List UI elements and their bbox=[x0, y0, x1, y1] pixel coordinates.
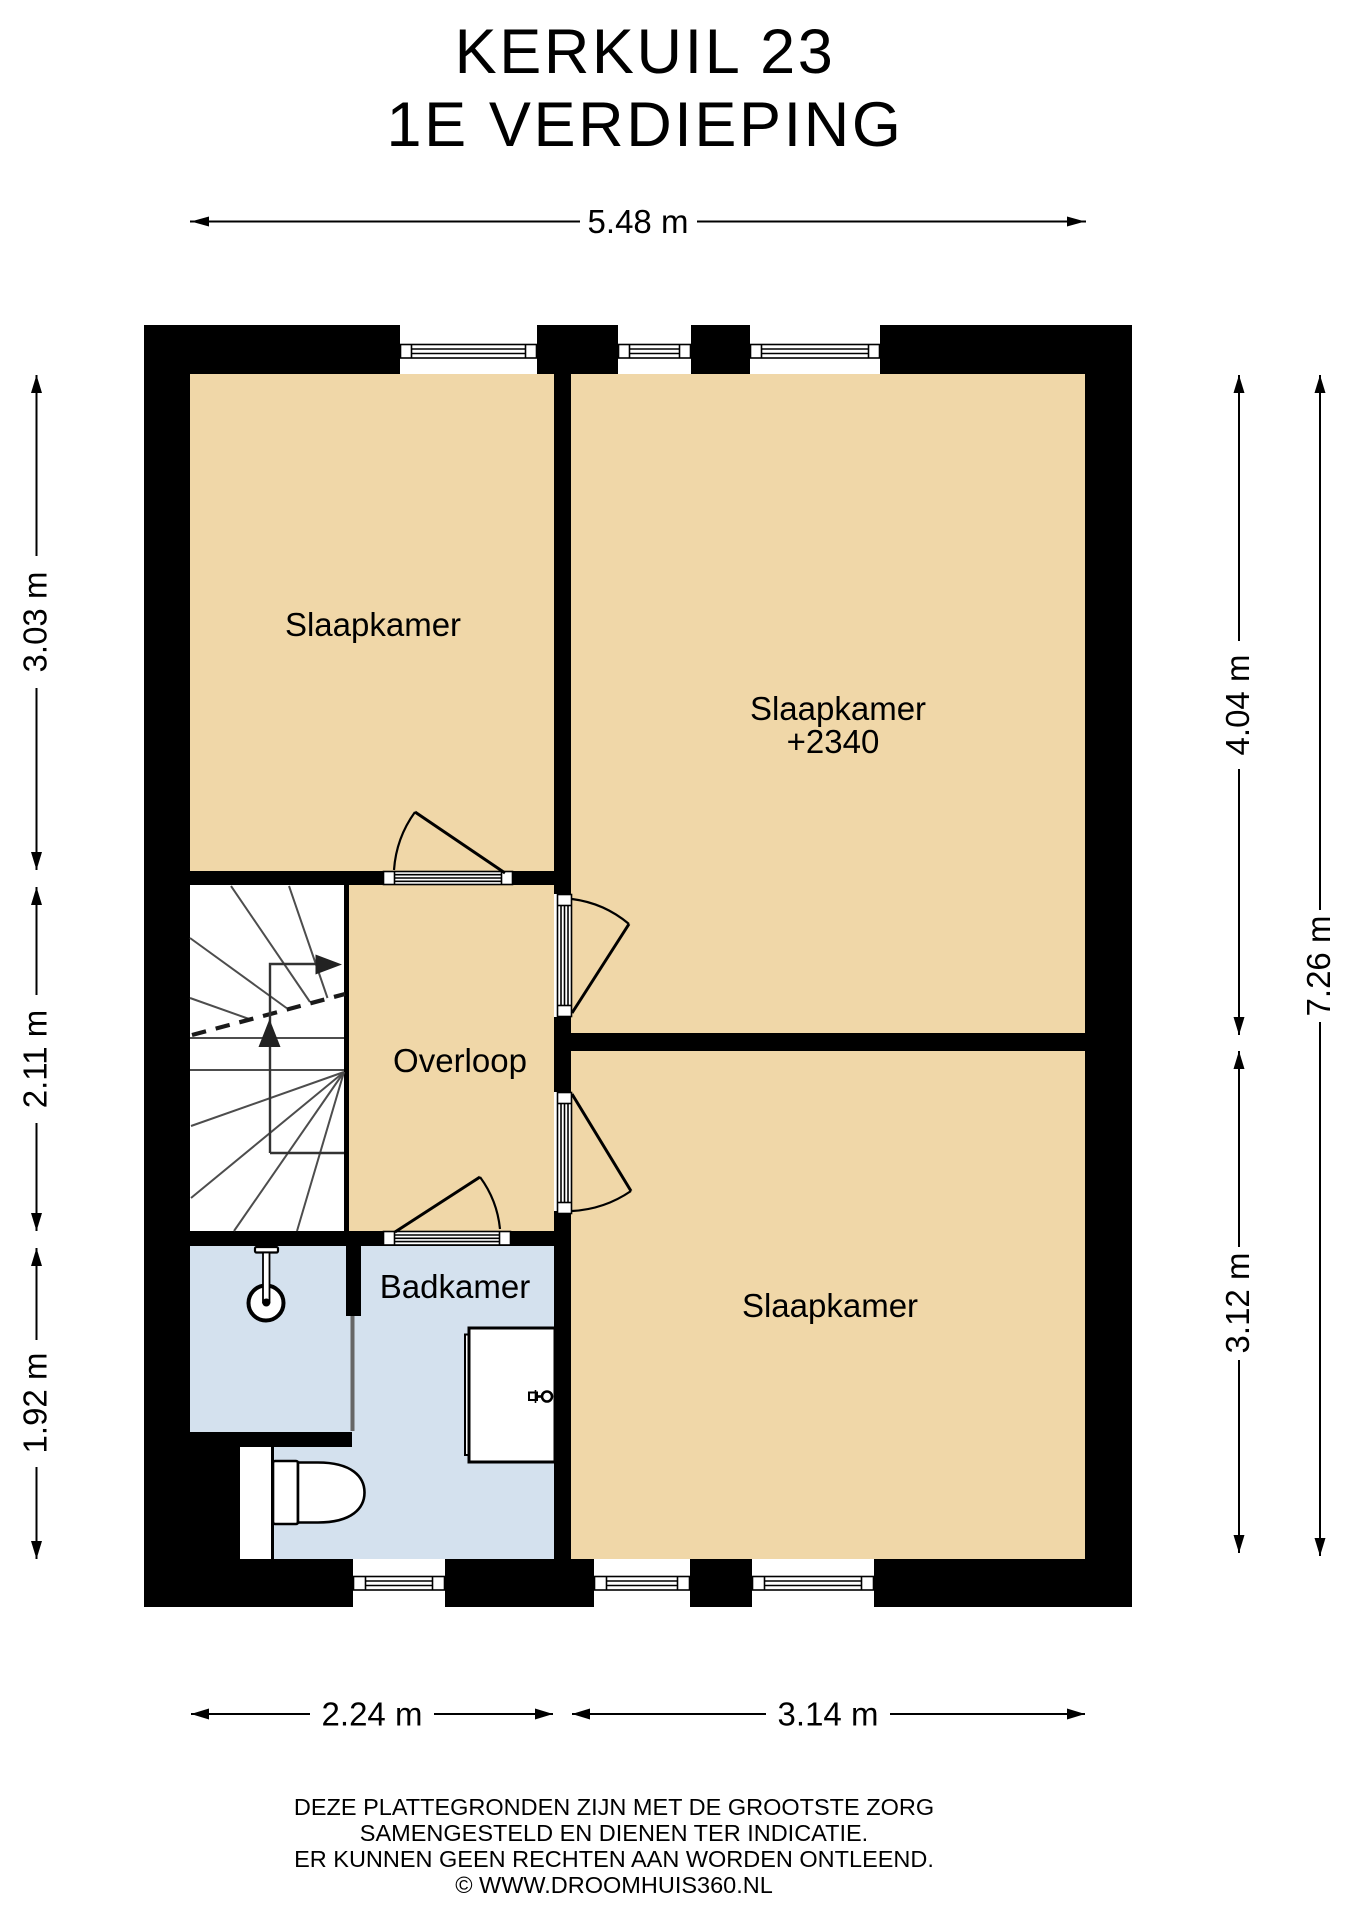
svg-text:Overloop: Overloop bbox=[393, 1042, 527, 1079]
svg-text:© WWW.DROOMHUIS360.NL: © WWW.DROOMHUIS360.NL bbox=[455, 1872, 773, 1898]
svg-text:4.04 m: 4.04 m bbox=[1219, 655, 1256, 756]
svg-text:5.48 m: 5.48 m bbox=[588, 203, 689, 240]
svg-text:+2340: +2340 bbox=[787, 723, 880, 760]
svg-text:Slaapkamer: Slaapkamer bbox=[285, 606, 461, 643]
svg-text:Slaapkamer: Slaapkamer bbox=[750, 690, 926, 727]
svg-text:3.12 m: 3.12 m bbox=[1219, 1253, 1256, 1354]
svg-text:3.03 m: 3.03 m bbox=[17, 572, 54, 673]
svg-text:7.26 m: 7.26 m bbox=[1300, 916, 1337, 1017]
svg-text:2.24 m: 2.24 m bbox=[322, 1696, 423, 1733]
svg-text:DEZE PLATTEGRONDEN ZIJN MET DE: DEZE PLATTEGRONDEN ZIJN MET DE GROOTSTE … bbox=[294, 1794, 934, 1820]
svg-text:1E VERDIEPING: 1E VERDIEPING bbox=[387, 90, 904, 160]
svg-text:3.14 m: 3.14 m bbox=[778, 1696, 879, 1733]
svg-text:2.11 m: 2.11 m bbox=[17, 1010, 54, 1108]
svg-text:1.92 m: 1.92 m bbox=[17, 1353, 54, 1454]
svg-text:KERKUIL 23: KERKUIL 23 bbox=[455, 17, 836, 87]
svg-text:SAMENGESTELD EN DIENEN TER IND: SAMENGESTELD EN DIENEN TER INDICATIE. bbox=[360, 1820, 868, 1846]
svg-text:ER KUNNEN GEEN RECHTEN AAN WOR: ER KUNNEN GEEN RECHTEN AAN WORDEN ONTLEE… bbox=[294, 1846, 934, 1872]
svg-text:Badkamer: Badkamer bbox=[380, 1268, 530, 1305]
svg-text:Slaapkamer: Slaapkamer bbox=[742, 1287, 918, 1324]
